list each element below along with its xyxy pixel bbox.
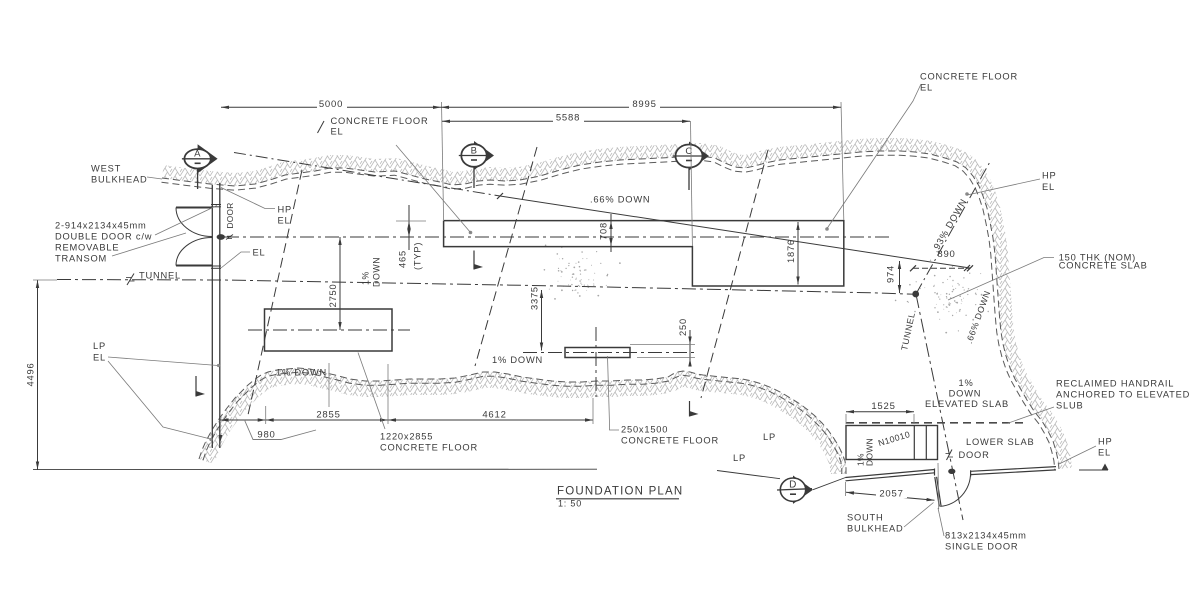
svg-text:EL: EL [253,248,266,258]
svg-text:LOWER SLAB: LOWER SLAB [966,437,1034,447]
svg-text:DOOR: DOOR [225,202,235,228]
svg-text:2855: 2855 [316,410,340,421]
svg-text:DOWN: DOWN [865,438,875,466]
svg-text:.66% DOWN: .66% DOWN [590,195,650,205]
svg-text:3375: 3375 [530,286,540,310]
svg-text:RECLAIMED HANDRAIL: RECLAIMED HANDRAIL [1056,379,1174,389]
svg-text:CONCRETE FLOOR: CONCRETE FLOOR [621,436,719,446]
svg-text:DOWN: DOWN [372,257,382,287]
svg-text:2750: 2750 [328,284,338,308]
svg-text:HP: HP [1098,437,1113,447]
svg-text:465: 465 [398,250,408,268]
svg-text:EL: EL [1042,182,1055,192]
svg-text:DOWN: DOWN [949,389,982,399]
svg-text:813x2134x45mm: 813x2134x45mm [945,531,1027,541]
svg-text:5588: 5588 [556,113,580,124]
svg-text:2-914x2134x45mm: 2-914x2134x45mm [55,221,147,231]
svg-text:1%: 1% [958,378,973,388]
svg-text:CONCRETE FLOOR: CONCRETE FLOOR [380,443,478,453]
svg-text:LP: LP [733,453,746,463]
svg-text:WEST: WEST [91,164,121,174]
svg-text:CONCRETE SLAB: CONCRETE SLAB [1059,261,1148,271]
svg-text:4612: 4612 [482,410,506,421]
svg-text:D: D [789,480,797,491]
svg-text:HP: HP [1042,171,1057,181]
svg-text:B: B [471,145,478,156]
svg-text:EL: EL [331,127,344,137]
svg-text:4496: 4496 [26,363,36,387]
svg-text:DOUBLE DOOR c/w: DOUBLE DOOR c/w [55,232,152,242]
svg-text:2057: 2057 [879,489,903,500]
svg-text:(TYP): (TYP) [413,242,423,270]
svg-text:1876: 1876 [786,239,796,263]
svg-text:LP: LP [93,341,106,351]
svg-text:5000: 5000 [319,99,343,110]
svg-text:EL: EL [93,353,106,363]
svg-text:EL: EL [920,83,933,93]
svg-text:TUNNEL: TUNNEL [139,271,181,281]
svg-text:CONCRETE FLOOR: CONCRETE FLOOR [331,116,429,126]
svg-text:8995: 8995 [632,99,656,110]
svg-text:BULKHEAD: BULKHEAD [847,524,904,534]
svg-text:EL: EL [1098,448,1111,458]
svg-text:CONCRETE FLOOR: CONCRETE FLOOR [920,72,1018,82]
svg-text:FOUNDATION PLAN: FOUNDATION PLAN [557,486,683,498]
svg-text:HP: HP [278,205,293,215]
svg-text:TRANSOM: TRANSOM [55,254,107,264]
svg-text:DOOR: DOOR [959,450,990,460]
svg-text:250: 250 [678,318,688,336]
svg-text:1%: 1% [361,271,371,285]
svg-text:ANCHORED TO ELEVATED: ANCHORED TO ELEVATED [1056,390,1190,400]
svg-text:1% DOWN: 1% DOWN [492,355,543,365]
svg-text:SLUB: SLUB [1056,401,1084,411]
svg-text:708: 708 [599,222,609,240]
svg-text:1% DOWN: 1% DOWN [276,368,327,378]
svg-text:980: 980 [257,430,275,441]
svg-text:1: 50: 1: 50 [558,499,582,509]
svg-text:1220x2855: 1220x2855 [380,432,433,442]
svg-text:BULKHEAD: BULKHEAD [91,175,148,185]
svg-text:C: C [685,146,692,157]
svg-text:EL: EL [278,216,291,226]
svg-text:250x1500: 250x1500 [621,425,668,435]
svg-text:LP: LP [763,432,776,442]
svg-text:REMOVABLE: REMOVABLE [55,243,119,253]
svg-text:974: 974 [886,265,896,283]
svg-text:SOUTH: SOUTH [847,513,884,523]
svg-text:A: A [194,149,201,160]
svg-text:ELEVATED SLAB: ELEVATED SLAB [925,399,1009,409]
svg-text:SINGLE DOOR: SINGLE DOOR [945,542,1018,552]
svg-text:1525: 1525 [871,401,895,412]
